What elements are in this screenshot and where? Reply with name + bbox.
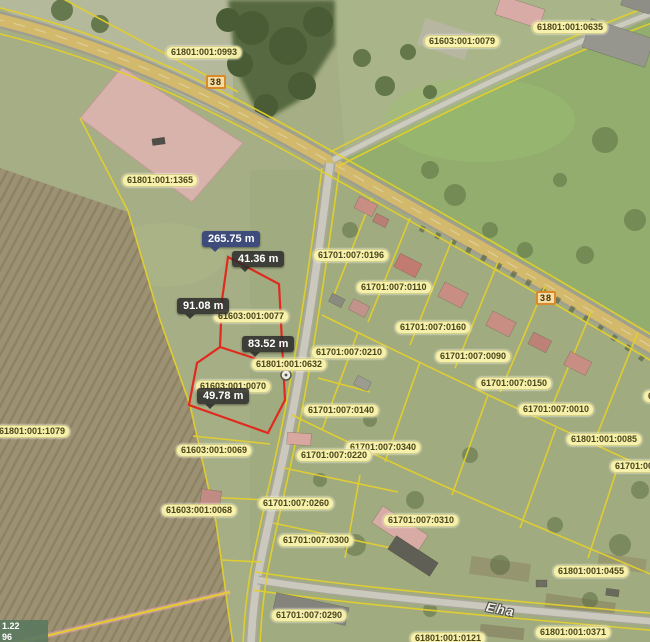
parcel-label[interactable]: 61801:001:0121 bbox=[410, 632, 486, 642]
parcel-label[interactable]: 61801:001:0993 bbox=[166, 46, 242, 59]
measurement-tooltip: 41.36 m bbox=[232, 251, 284, 267]
parcel-label[interactable]: 61701:007:0140 bbox=[303, 404, 379, 417]
parcel-label[interactable]: 61701:007:0150 bbox=[476, 377, 552, 390]
parcel-label[interactable]: 61603:001:0069 bbox=[176, 444, 252, 457]
map-viewport[interactable]: Eha 1.22 96 61801:001:099361603:001:0079… bbox=[0, 0, 650, 642]
parcel-label[interactable]: 61701:00 bbox=[610, 460, 650, 473]
parcel-label[interactable]: 61801:001:0632 bbox=[251, 358, 327, 371]
measurement-tooltip: 91.08 m bbox=[177, 298, 229, 314]
parcel-label[interactable]: 61701:007:0010 bbox=[518, 403, 594, 416]
coordinate-line-2: 96 bbox=[2, 632, 42, 642]
parcel-label[interactable]: 61701:007:0260 bbox=[258, 497, 334, 510]
parcel-label[interactable]: 6 bbox=[643, 390, 650, 403]
parcel-label[interactable]: 61701:007:0210 bbox=[311, 346, 387, 359]
measurement-tooltip: 265.75 m bbox=[202, 231, 260, 247]
parcel-label[interactable]: 61701:007:0220 bbox=[296, 449, 372, 462]
parcel-label[interactable]: 61701:007:0290 bbox=[271, 609, 347, 622]
parcel-label[interactable]: 61801:001:1365 bbox=[122, 174, 198, 187]
parcel-label[interactable]: 61701:007:0196 bbox=[313, 249, 389, 262]
parcel-label[interactable]: 61801:001:0085 bbox=[566, 433, 642, 446]
parcel-label[interactable]: 61701:007:0310 bbox=[383, 514, 459, 527]
parcel-label[interactable]: 61603:001:0079 bbox=[424, 35, 500, 48]
measurement-tooltip: 83.52 m bbox=[242, 336, 294, 352]
road-number-badge: 38 bbox=[206, 75, 226, 89]
road-number-badge: 38 bbox=[536, 291, 556, 305]
street-name-label: Eha bbox=[485, 599, 517, 619]
parcel-label[interactable]: 61801:001:0455 bbox=[553, 565, 629, 578]
coordinate-line-1: 1.22 bbox=[2, 621, 42, 632]
parcel-label[interactable]: 61701:007:0090 bbox=[435, 350, 511, 363]
parcel-label[interactable]: 61603:001:0068 bbox=[161, 504, 237, 517]
parcel-label[interactable]: 61801:001:1079 bbox=[0, 425, 70, 438]
coordinate-readout: 1.22 96 bbox=[0, 620, 48, 642]
parcel-label[interactable]: 61801:001:0371 bbox=[535, 626, 611, 639]
parcel-label[interactable]: 61701:007:0300 bbox=[278, 534, 354, 547]
parcel-label[interactable]: 61701:007:0160 bbox=[395, 321, 471, 334]
map-labels-layer: Eha 1.22 96 61801:001:099361603:001:0079… bbox=[0, 0, 650, 642]
parcel-label[interactable]: 61801:001:0635 bbox=[532, 21, 608, 34]
parcel-label[interactable]: 61701:007:0110 bbox=[356, 281, 432, 294]
measurement-tooltip: 49.78 m bbox=[197, 388, 249, 404]
